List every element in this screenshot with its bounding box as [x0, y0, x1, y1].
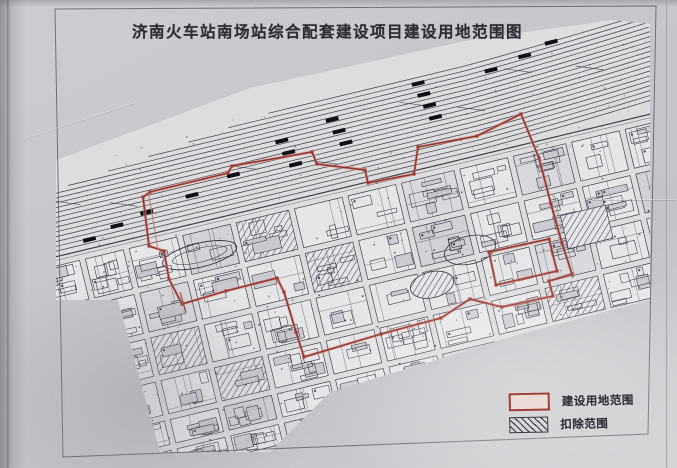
map-title: 济南火车站南场站综合配套建设项目建设用地范围图 [55, 20, 600, 42]
legend-swatch-hatch-icon [509, 416, 548, 433]
legend-item-construction-land: 建设用地范围 [509, 391, 634, 412]
legend-label: 扣除范围 [560, 415, 608, 432]
legend-swatch-boundary-icon [509, 392, 550, 411]
photo-shadow-top [0, 0, 677, 7]
paper-crease [592, 199, 676, 201]
legend-label: 建设用地范围 [562, 392, 634, 410]
legend-item-excluded-area: 扣除范围 [509, 415, 634, 434]
paper-edge [666, 0, 668, 468]
photo-of-map-sheet: 济南火车站南场站综合配套建设项目建设用地范围图 建设用地范围 扣除范围 [0, 0, 677, 468]
legend: 建设用地范围 扣除范围 [509, 391, 635, 434]
